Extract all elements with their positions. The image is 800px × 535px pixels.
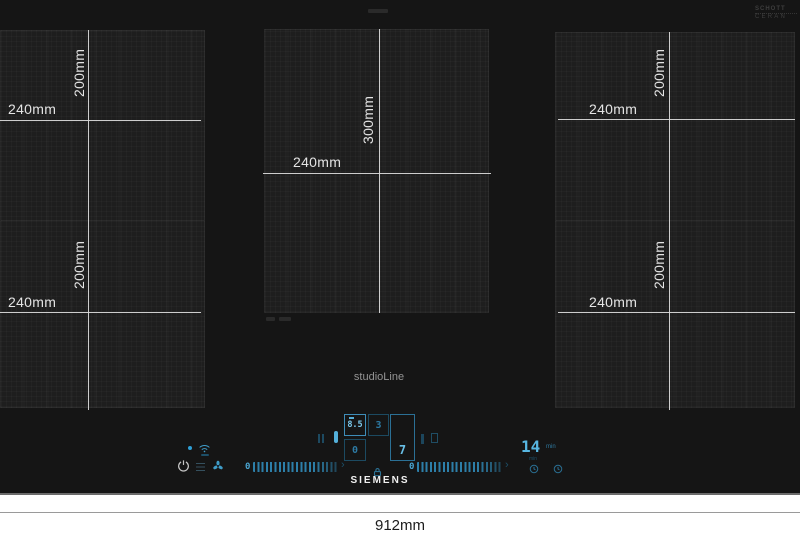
- dimension-line-vertical-left: [88, 30, 89, 410]
- dimension-line-right-top: [558, 119, 795, 120]
- zone-power-value: 3: [375, 420, 381, 431]
- dimension-label: 240mm: [8, 101, 56, 117]
- zone-power-value: 7: [399, 443, 406, 457]
- timer-unit: min: [546, 444, 556, 450]
- power-slider-right[interactable]: 0 ›: [417, 461, 517, 474]
- dimension-label: 240mm: [293, 154, 341, 170]
- menu-icon[interactable]: [196, 463, 205, 471]
- top-center-marking: [368, 9, 388, 13]
- dimension-line-vertical-right: [669, 32, 670, 410]
- status-dot: [188, 446, 192, 450]
- pan-outline-icon: [431, 433, 438, 443]
- zone-divider: [1, 220, 204, 221]
- schott-ceran-line1: SCHOTT: [755, 6, 797, 13]
- zone-divider: [556, 220, 794, 221]
- pan-size-marking: [266, 317, 275, 321]
- dimension-label: 300mm: [360, 98, 376, 144]
- dimension-line-right-bottom: [558, 312, 795, 313]
- dim-bar-icon: [421, 434, 424, 444]
- zone-power-display-4[interactable]: 7: [390, 414, 415, 461]
- cooking-zone-left: [0, 30, 205, 408]
- clock-icon[interactable]: [529, 461, 539, 479]
- pan-size-marking: [279, 317, 291, 321]
- siemens-logo: SIEMENS: [330, 475, 430, 486]
- pause-icon[interactable]: [318, 434, 324, 443]
- studioline-label: studioLine: [339, 371, 419, 383]
- boost-marking: [349, 417, 354, 419]
- schott-ceran-logo: SCHOTT CERAN: [755, 6, 797, 21]
- overall-width-label: 912mm: [0, 517, 800, 534]
- power-icon[interactable]: [177, 459, 190, 477]
- dimension-label: 240mm: [589, 101, 637, 117]
- slider-zero-label: 0: [409, 462, 414, 472]
- cooking-zone-center: [264, 29, 489, 313]
- timer-value: 14: [521, 437, 540, 456]
- overall-dimension-line: [0, 512, 800, 513]
- chevron-right-icon: ›: [505, 459, 509, 471]
- power-slider-left[interactable]: 0 ›: [253, 461, 353, 474]
- dimension-line-vertical-center: [379, 29, 380, 313]
- wifi-sub-marking: [201, 454, 209, 456]
- zone-power-display-3[interactable]: 0: [344, 439, 366, 461]
- slider-bars[interactable]: [253, 462, 339, 472]
- wifi-icon[interactable]: [198, 441, 211, 459]
- clock-icon[interactable]: [553, 461, 563, 479]
- schott-ceran-line2: CERAN: [755, 13, 797, 21]
- dimension-label: 200mm: [651, 51, 667, 97]
- active-bar-icon: [334, 431, 338, 443]
- slider-bars[interactable]: [417, 462, 503, 472]
- dimension-line-center: [263, 173, 491, 174]
- cooking-zone-right: [555, 32, 795, 408]
- zone-power-display-2[interactable]: 3: [368, 414, 389, 436]
- cooktop-glass-surface: SCHOTT CERAN 240mm 200mm 240mm 200mm 300…: [0, 0, 800, 495]
- dimension-line-left-top: [0, 120, 201, 121]
- dimension-line-left-bottom: [0, 312, 201, 313]
- hood-fan-icon[interactable]: [212, 459, 224, 477]
- zone-power-value: 0: [352, 445, 358, 456]
- product-dimension-diagram: SCHOTT CERAN 240mm 200mm 240mm 200mm 300…: [0, 0, 800, 535]
- dimension-label: 240mm: [8, 294, 56, 310]
- zone-power-value: 8.5: [347, 420, 362, 430]
- dimension-label: 240mm: [589, 294, 637, 310]
- dimension-label: 200mm: [71, 243, 87, 289]
- slider-zero-label: 0: [245, 462, 250, 472]
- dimension-label: 200mm: [651, 243, 667, 289]
- zone-power-display-1[interactable]: 8.5: [344, 414, 366, 436]
- dimension-label: 200mm: [71, 51, 87, 97]
